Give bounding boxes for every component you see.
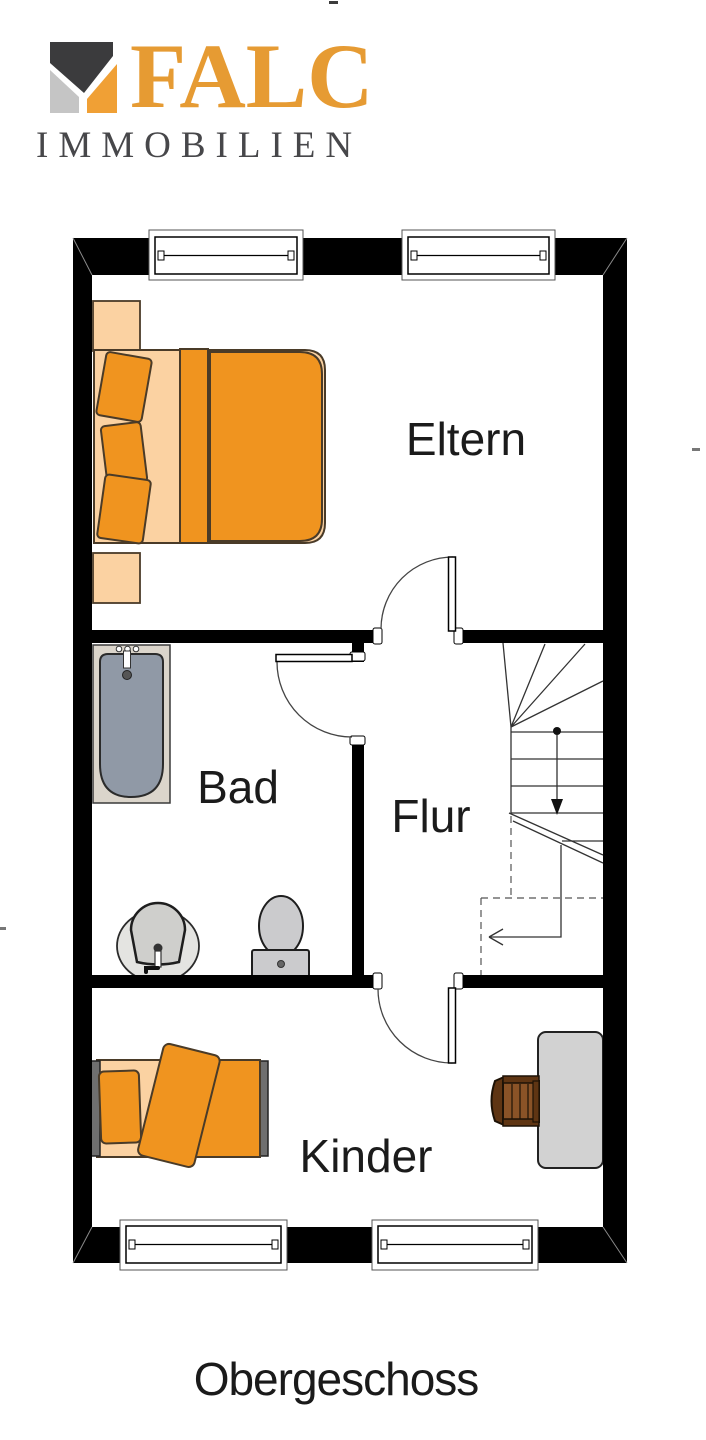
- room-label-bad: Bad: [197, 761, 279, 813]
- blanket-fold: [180, 349, 208, 543]
- faucet-stem: [155, 951, 161, 967]
- winder-treads: [511, 644, 603, 727]
- wall-bad-bottom: [352, 738, 364, 975]
- chair: [492, 1076, 540, 1126]
- door-swing-arc: [378, 989, 453, 1063]
- single-bed: [90, 1043, 268, 1169]
- door-leaf: [276, 655, 352, 662]
- door-eltern: [373, 557, 463, 644]
- staircase: [481, 643, 603, 975]
- room-label-flur: Flur: [391, 790, 470, 842]
- chair-front-rail: [533, 1081, 539, 1122]
- nightstand-top: [93, 301, 140, 351]
- door-bad: [276, 652, 365, 745]
- walk-line-start: [553, 727, 561, 735]
- door-leaf: [449, 557, 456, 631]
- window: [149, 230, 303, 280]
- faucet: [124, 651, 131, 668]
- walk-line-lower: [489, 845, 561, 937]
- bathtub: [93, 645, 170, 803]
- duvet: [210, 352, 322, 541]
- floor-plan-drawing: Eltern Bad Flur Kinder: [0, 0, 706, 1440]
- stair-cut-line: [509, 813, 603, 863]
- window: [120, 1220, 287, 1270]
- room-label-kinder: Kinder: [300, 1130, 433, 1182]
- pillow: [99, 1070, 141, 1143]
- desk: [538, 1032, 603, 1168]
- pillow: [96, 351, 152, 422]
- drain: [123, 671, 132, 680]
- flush-button: [278, 961, 285, 968]
- tap-knob: [116, 646, 122, 652]
- door-swing-arc: [277, 662, 352, 737]
- tick-mark-top: [329, 1, 338, 4]
- toilet: [252, 896, 309, 977]
- tick-mark-left: [0, 927, 6, 930]
- window: [402, 230, 555, 280]
- wall-kinder-left: [92, 975, 378, 988]
- hidden-stair-outline: [481, 816, 603, 975]
- tick-mark-right: [692, 448, 700, 451]
- room-label-eltern: Eltern: [406, 413, 526, 465]
- wall-eltern-right: [457, 630, 603, 643]
- door-leaf: [449, 988, 456, 1063]
- tap-knob: [133, 646, 139, 652]
- window: [372, 1220, 538, 1270]
- door-kinder: [373, 973, 463, 1063]
- pillow: [97, 474, 151, 544]
- toilet-bowl: [259, 896, 303, 956]
- wall-kinder-right: [457, 975, 603, 988]
- nightstand-bottom: [93, 553, 140, 603]
- door-swing-arc: [381, 557, 453, 629]
- double-bed: [93, 301, 325, 603]
- sink: [117, 903, 199, 982]
- floor-plan-page: FALC IMMOBILIEN: [0, 0, 706, 1440]
- floor-title: Obergeschoss: [194, 1352, 479, 1406]
- stair-edge: [503, 643, 511, 727]
- wall-eltern-left: [92, 630, 378, 643]
